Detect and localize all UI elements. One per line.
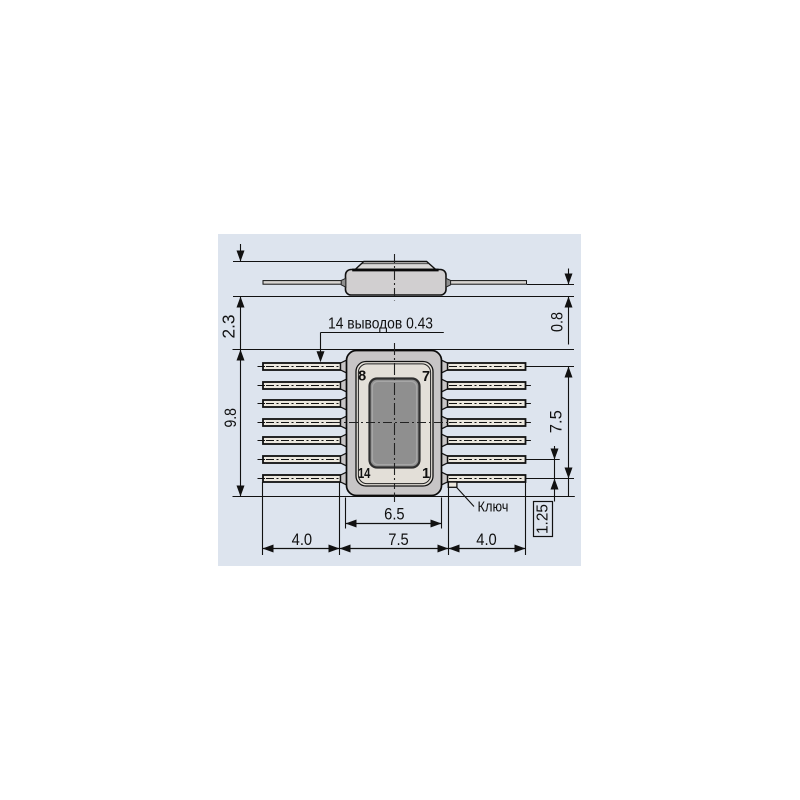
svg-text:1: 1 — [422, 466, 430, 482]
svg-text:4.0: 4.0 — [476, 530, 497, 549]
svg-text:1.25: 1.25 — [534, 504, 551, 534]
svg-text:7.5: 7.5 — [546, 410, 565, 433]
svg-text:6.5: 6.5 — [384, 504, 405, 523]
svg-text:4.0: 4.0 — [292, 530, 313, 549]
svg-text:Ключ: Ключ — [478, 498, 509, 515]
svg-text:8: 8 — [358, 369, 366, 385]
svg-text:9.8: 9.8 — [221, 408, 240, 428]
svg-text:7: 7 — [422, 369, 430, 385]
svg-text:14: 14 — [358, 466, 371, 482]
svg-text:0.8: 0.8 — [547, 312, 566, 332]
svg-text:2.3: 2.3 — [219, 315, 239, 339]
svg-text:7.5: 7.5 — [388, 530, 409, 549]
svg-text:14 выводов 0.43: 14 выводов 0.43 — [328, 315, 433, 332]
